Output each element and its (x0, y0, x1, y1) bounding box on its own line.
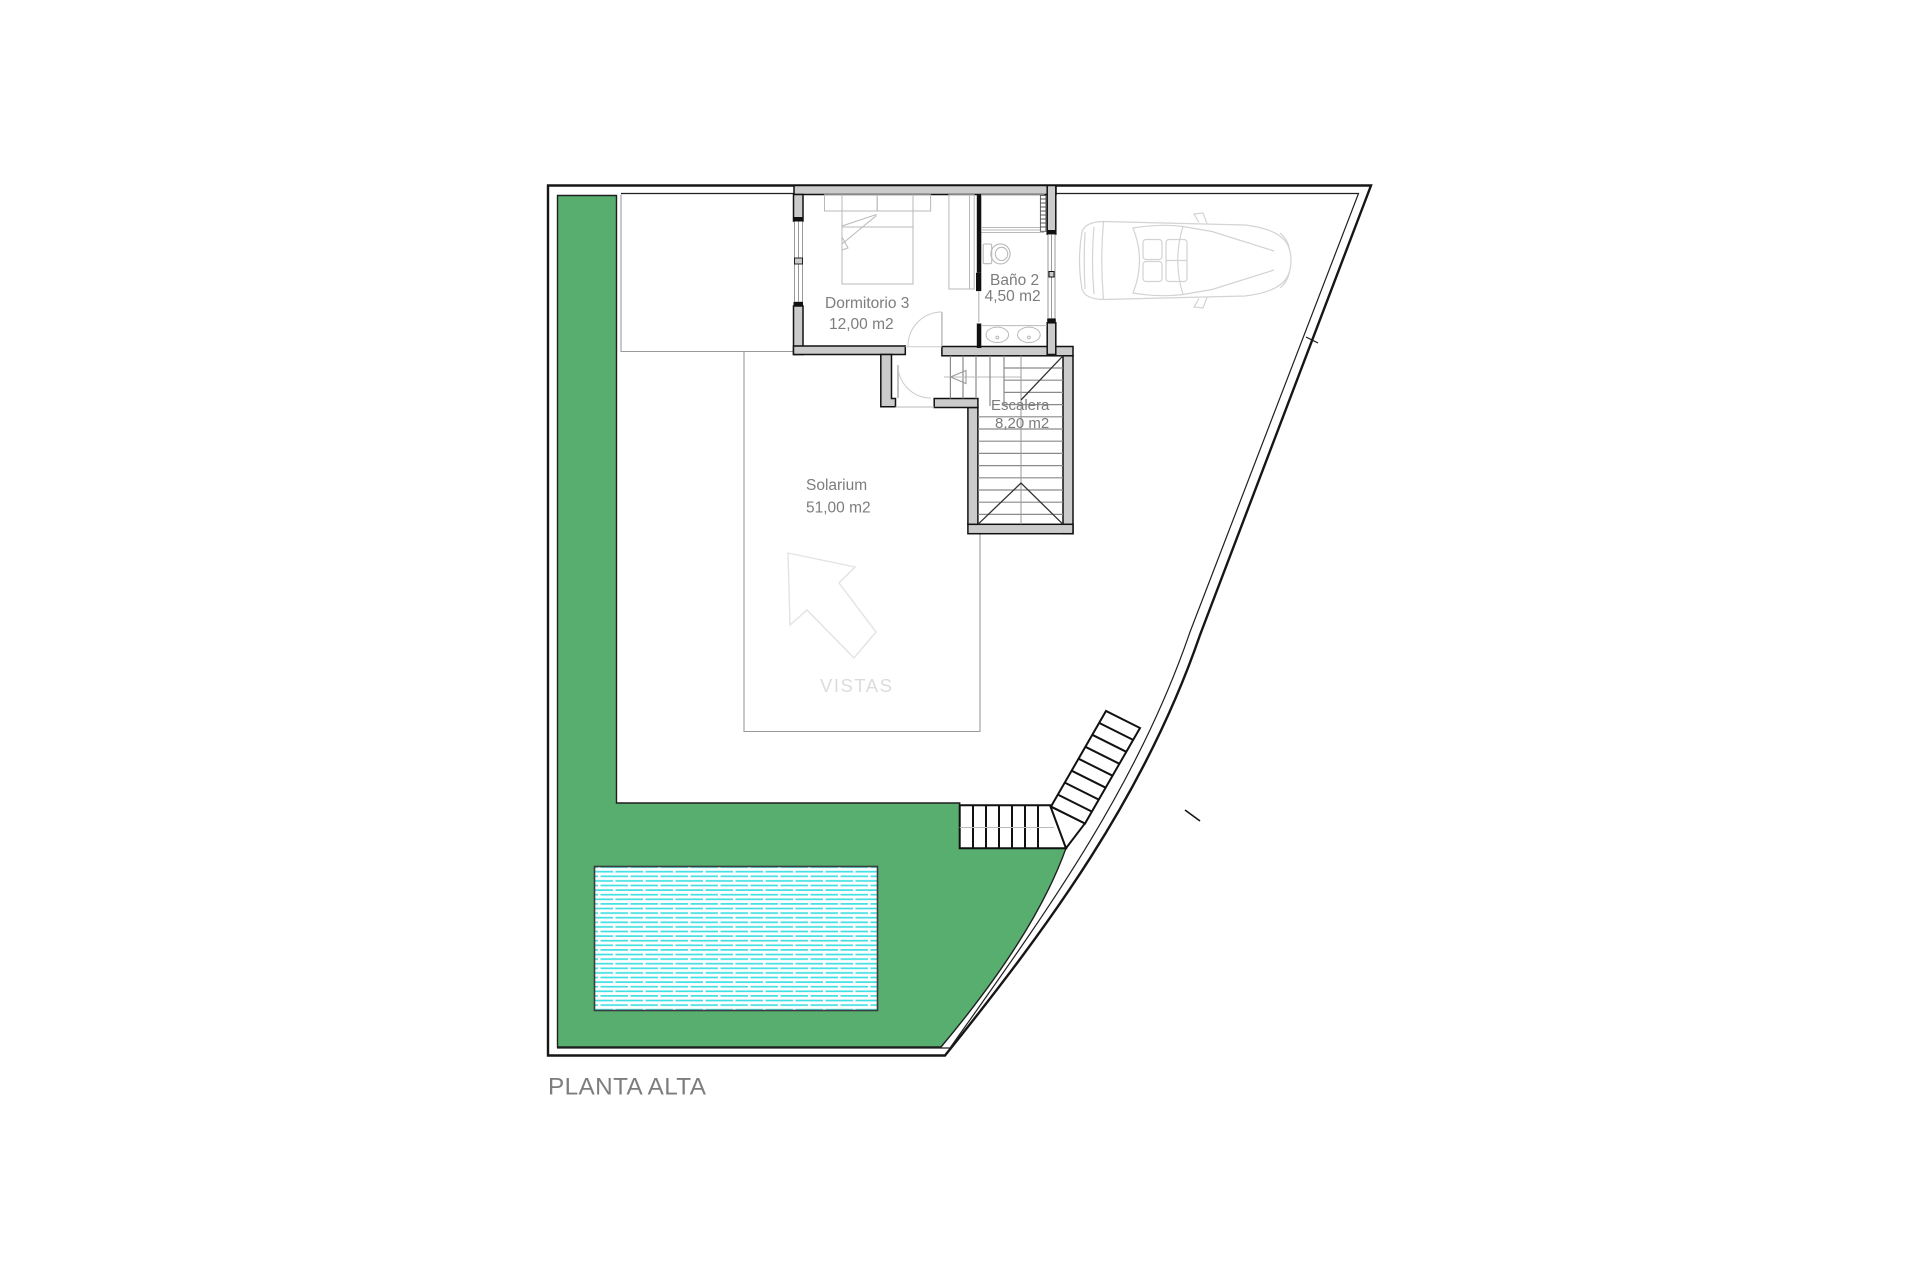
svg-text:Dormitorio 3: Dormitorio 3 (825, 295, 909, 312)
svg-text:Solarium: Solarium (806, 477, 867, 494)
svg-text:8,20 m2: 8,20 m2 (995, 415, 1049, 432)
svg-text:VISTAS: VISTAS (820, 675, 893, 696)
svg-text:PLANTA ALTA: PLANTA ALTA (548, 1074, 707, 1101)
svg-text:Baño 2: Baño 2 (990, 272, 1039, 289)
svg-text:4,50 m2: 4,50 m2 (985, 288, 1041, 305)
svg-text:51,00 m2: 51,00 m2 (806, 500, 871, 517)
svg-text:12,00 m2: 12,00 m2 (829, 316, 894, 333)
svg-text:Escalera: Escalera (991, 397, 1050, 414)
